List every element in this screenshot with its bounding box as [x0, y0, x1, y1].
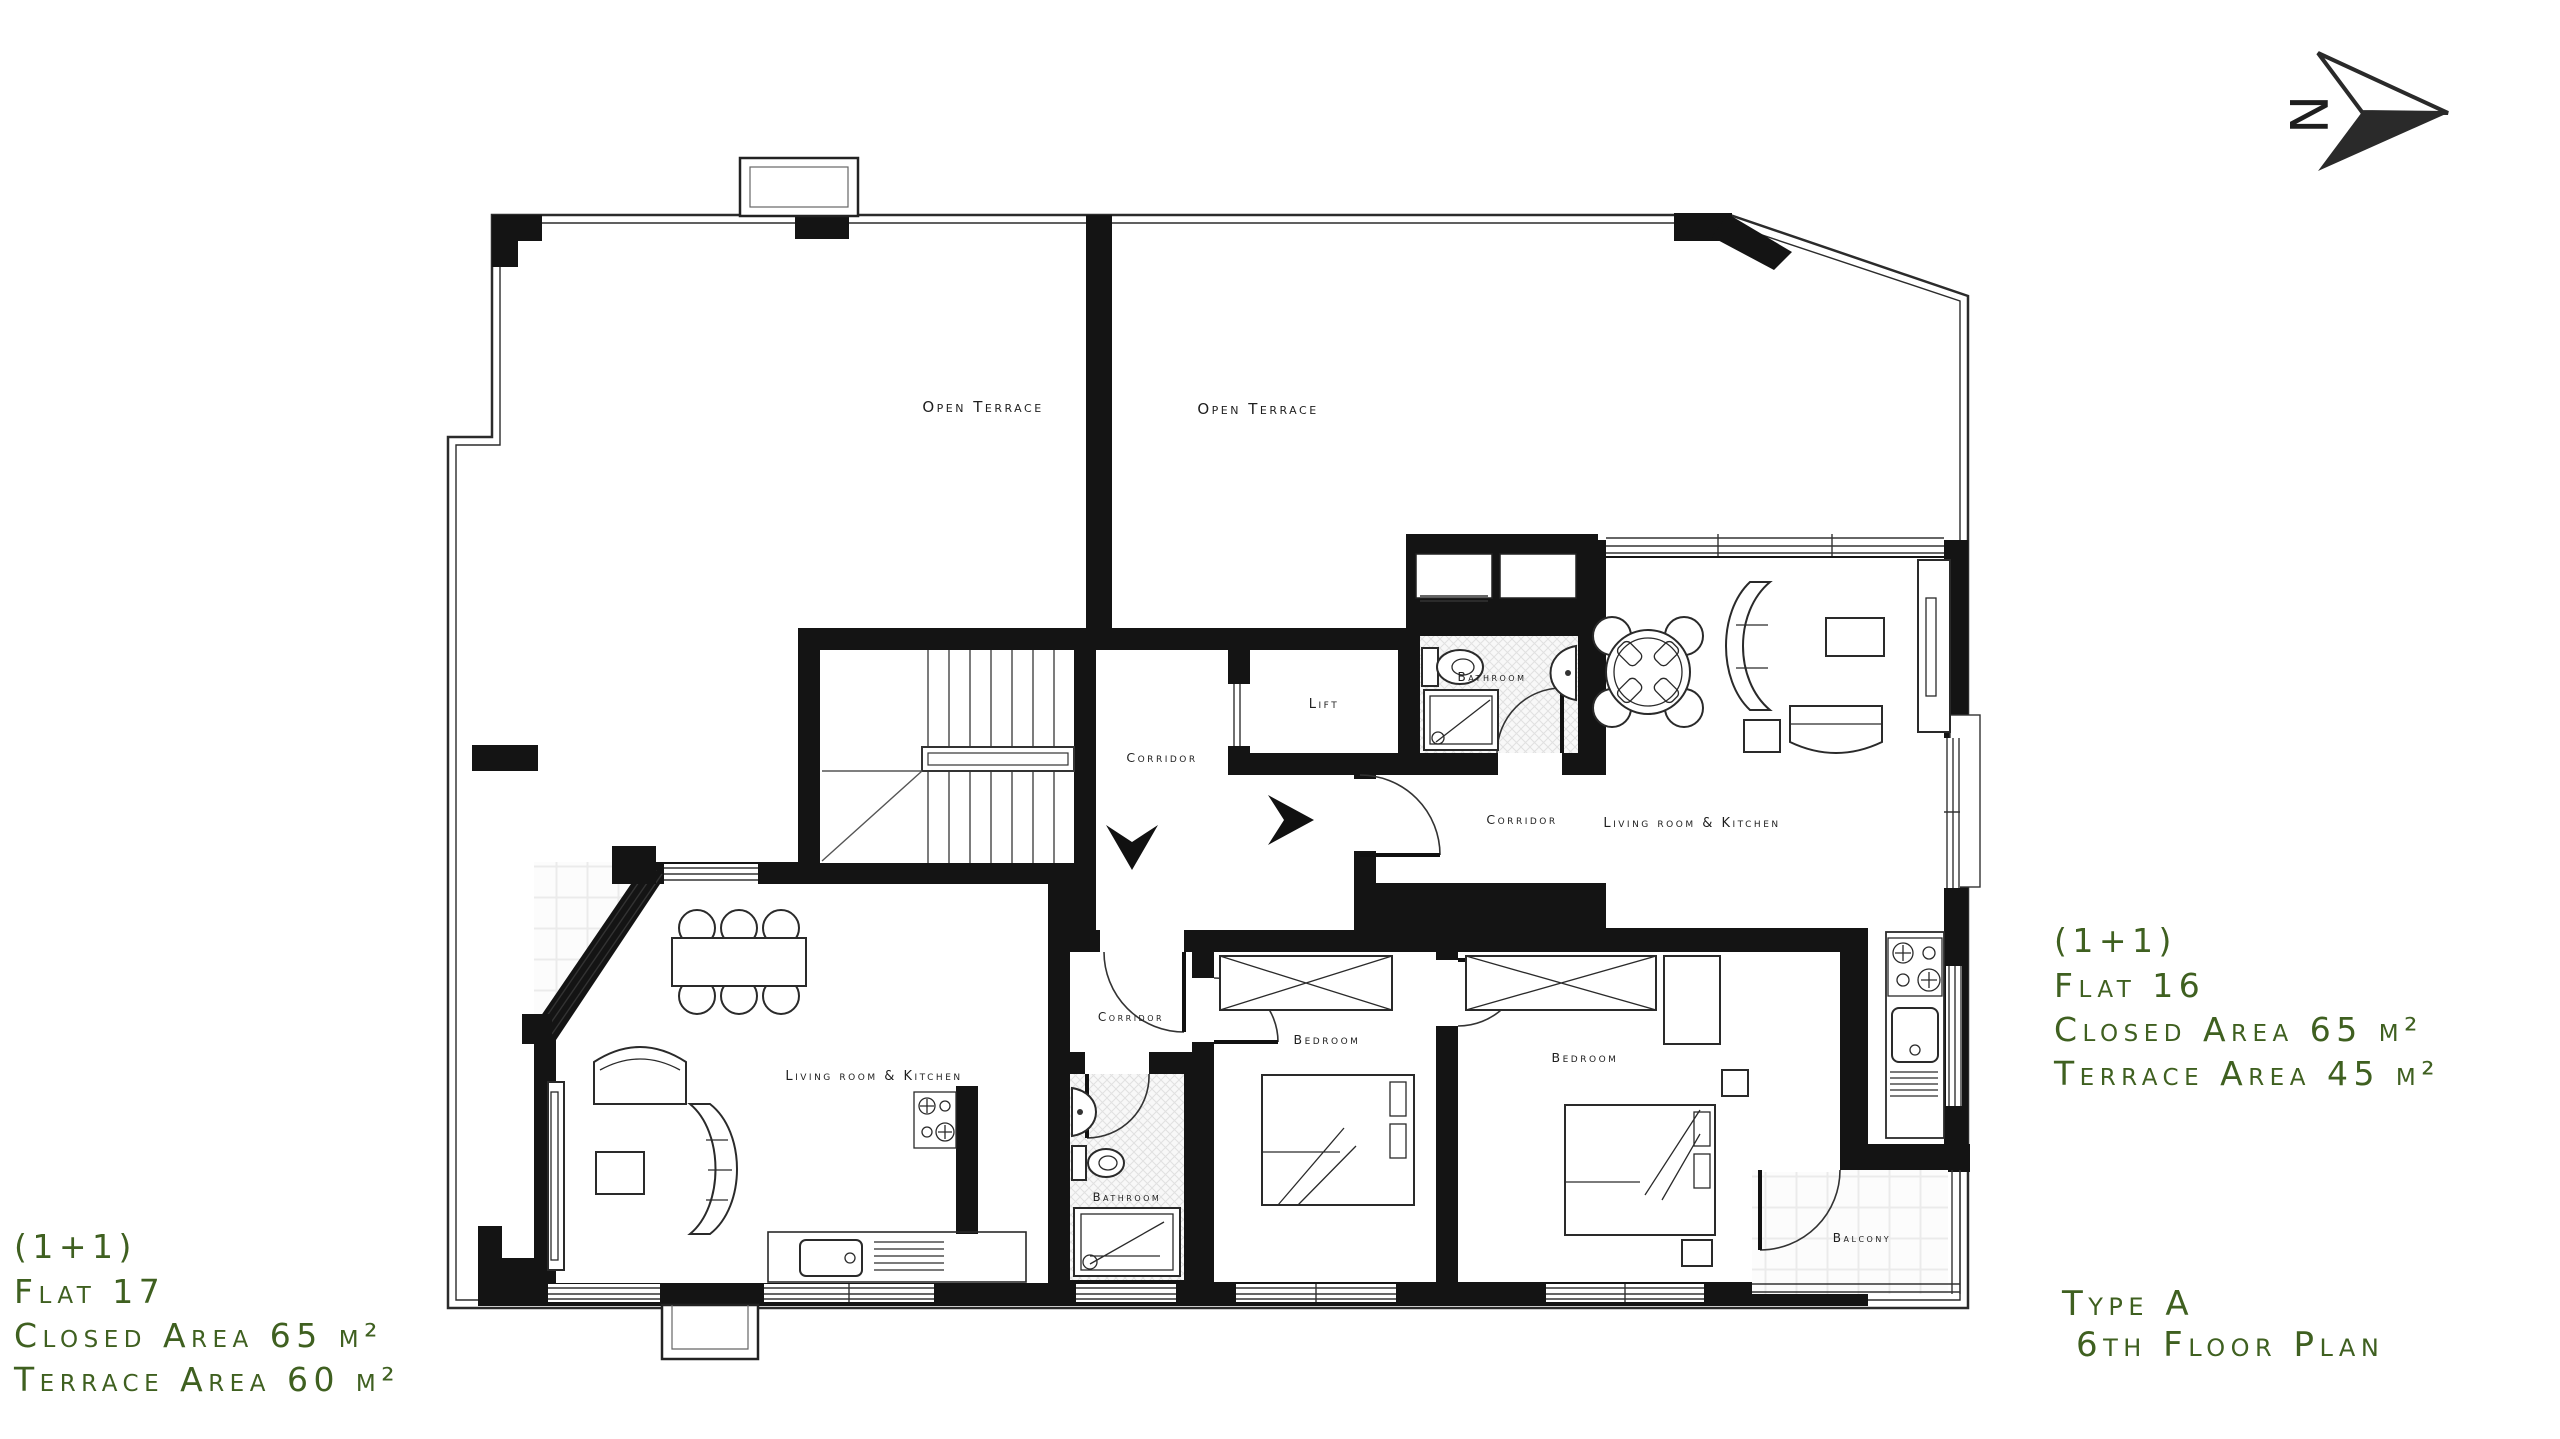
flat16-name: Flat 16	[2054, 966, 2205, 1005]
plan-title: Type A 6th Floor Plan	[2061, 1284, 2384, 1365]
nightstand	[1722, 1070, 1748, 1096]
flat16-entry-opening	[1354, 779, 1376, 851]
window-flat16-north	[1606, 534, 1944, 556]
label-corridor-flat16: Corridor	[1486, 812, 1557, 827]
flat16-terrace-area: Terrace Area 45 m²	[2053, 1054, 2440, 1093]
label-corridor-common: Corridor	[1126, 750, 1197, 765]
flat16-bedroom-opening	[1436, 960, 1458, 1026]
title-floor: 6th Floor Plan	[2076, 1325, 2384, 1365]
terrace-divider-wall	[1086, 215, 1112, 630]
wardrobe-icon	[1220, 956, 1392, 1010]
cabinet	[1664, 956, 1720, 1044]
label-living-flat16: Living room & Kitchen	[1603, 816, 1780, 831]
dining-table	[672, 938, 806, 986]
bed-icon	[1262, 1075, 1414, 1205]
tv-unit	[1918, 560, 1950, 732]
lift-door-opening	[1228, 684, 1250, 746]
label-bathroom-flat17: Bathroom	[1093, 1190, 1162, 1204]
side-table	[1744, 720, 1780, 752]
wardrobe-icon	[1466, 956, 1656, 1010]
flat17-corridor-room	[1070, 952, 1192, 1052]
label-lift: Lift	[1309, 697, 1339, 712]
round-dining-table	[1606, 630, 1690, 714]
floor-plan-page: Open Terrace Open Terrace Lift Corridor …	[0, 0, 2560, 1439]
label-corridor-flat17: Corridor	[1098, 1010, 1164, 1024]
flat17-type: (1+1)	[14, 1227, 137, 1266]
balcony-opening	[1758, 1144, 1840, 1172]
window-flat16-kitchen-east	[1946, 966, 1962, 1106]
window-flat17-north	[664, 864, 758, 884]
parapet-planter	[740, 158, 858, 216]
label-open-terrace-left: Open Terrace	[922, 398, 1043, 416]
bed-icon	[1565, 1105, 1715, 1235]
bottom-ledge	[662, 1305, 758, 1359]
floor-plan-drawing: Open Terrace Open Terrace Lift Corridor …	[0, 0, 2560, 1439]
label-open-terrace-right: Open Terrace	[1197, 400, 1318, 418]
label-bedroom-flat16: Bedroom	[1552, 1050, 1619, 1065]
north-label: N	[2277, 95, 2337, 136]
label-bedroom-flat17: Bedroom	[1294, 1032, 1361, 1047]
sofa	[1790, 706, 1882, 753]
flat16-corridor-room	[1376, 775, 1610, 883]
side-table	[596, 1152, 644, 1194]
shaft-niche-left	[1416, 554, 1492, 598]
flat16-bathroom-opening	[1498, 753, 1562, 775]
flat17-bedroom-opening	[1192, 978, 1214, 1042]
flat16-closed-area: Closed Area 65 m²	[2054, 1010, 2423, 1049]
window-flat16-east	[1944, 715, 1980, 888]
flat17-closed-area: Closed Area 65 m²	[14, 1316, 383, 1355]
flat16-annotation: (1+1) Flat 16 Closed Area 65 m² Terrace …	[2053, 921, 2440, 1093]
shower-icon	[1074, 1208, 1180, 1276]
coffee-table	[1826, 618, 1884, 656]
flat16-kitchen	[1886, 932, 1944, 1138]
shower-icon	[1424, 690, 1498, 750]
shaft-niche-right	[1500, 554, 1576, 598]
flat17-entry-opening	[1100, 928, 1184, 954]
flat17-bathroom-opening	[1085, 1052, 1149, 1074]
stairwell-room	[820, 650, 1074, 863]
sofa	[594, 1047, 686, 1104]
label-balcony: Balcony	[1833, 1231, 1891, 1245]
flat17-annotation: (1+1) Flat 17 Closed Area 65 m² Terrace …	[13, 1227, 400, 1399]
flat17-name: Flat 17	[14, 1272, 165, 1311]
title-type: Type A	[2061, 1284, 2194, 1324]
north-arrow: N	[2277, 53, 2448, 171]
flat17-terrace-area: Terrace Area 60 m²	[13, 1360, 400, 1399]
label-bathroom-flat16: Bathroom	[1457, 670, 1526, 684]
nightstand	[1682, 1240, 1712, 1266]
toilet-icon	[1072, 1146, 1124, 1180]
flat16-type: (1+1)	[2054, 921, 2177, 960]
label-living-flat17: Living room & Kitchen	[785, 1069, 962, 1084]
